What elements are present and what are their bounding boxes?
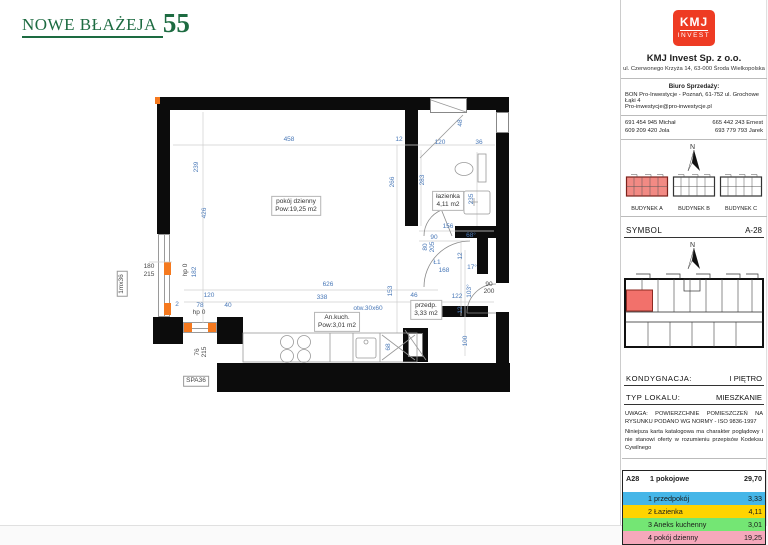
dimension-label: 103° — [467, 284, 474, 297]
sales-office: Biuro Sprzedaży: BON Pro-Inwestycje - Po… — [621, 79, 767, 116]
floor-location-section: N — [621, 238, 767, 367]
dimension-label: SPA36 — [183, 376, 209, 387]
phone-list: 691 454 945 Michał665 442 243 Ernest609 … — [621, 116, 767, 140]
dimension-label: hp 0 — [183, 264, 190, 277]
sales-office-heading: Biuro Sprzedaży: — [625, 83, 763, 90]
room-label: pokój dziennyPow:19,25 m2 — [271, 196, 321, 216]
window-marker — [164, 262, 171, 275]
type-label: TYP LOKALU: — [626, 393, 680, 402]
room-label: An.kuch.Pow:3,01 m2 — [314, 312, 360, 332]
dimension-label: 100 — [463, 336, 470, 347]
wall — [217, 317, 243, 344]
dimension-label: 426 — [202, 208, 209, 219]
duct-shaft-inner — [408, 333, 423, 357]
dimension-label: 12 — [395, 137, 402, 144]
company-address: ul. Czerwonego Krzyża 14, 63-000 Środa W… — [621, 66, 767, 72]
highlighted-apartment — [627, 290, 653, 311]
dimension-label: 156 — [443, 224, 454, 231]
dimension-label: 235 — [469, 194, 476, 205]
dimension-label: 200 — [484, 289, 495, 296]
dimension-label: 338 — [317, 295, 328, 302]
dimension-label: 46 — [410, 293, 417, 300]
dimension-label: 458 — [284, 137, 295, 144]
type-value: MIESZKANIE — [716, 393, 762, 402]
dimension-label: 48 — [458, 119, 465, 126]
dimension-label: 120 — [435, 140, 446, 147]
buildings-row: BUDYNEK ABUDYNEK BBUDYNEK C — [621, 173, 767, 212]
dimension-label: 68° — [466, 233, 476, 240]
north-arrow-icon: N — [682, 142, 706, 172]
wall — [217, 363, 510, 392]
floor-value: I PIĘTRO — [730, 374, 763, 383]
wall — [496, 312, 509, 363]
phone-item: 665 442 243 Ernest — [694, 120, 763, 126]
note-line1: UWAGA: POWIERZCHNIE POMIESZCZEŃ NA RYSUN… — [625, 410, 763, 427]
dimension-label: 215 — [144, 272, 155, 279]
dimension-label: 1mx36 — [117, 271, 128, 297]
dimension-label: 239 — [194, 162, 201, 173]
svg-text:N: N — [690, 144, 695, 151]
table-spacer — [623, 485, 765, 492]
wall — [153, 317, 183, 344]
kmj-logo-subtext: INVEST — [678, 33, 710, 40]
floor-label: KONDYGNACJA: — [626, 374, 692, 383]
dimension-label: 120 — [204, 293, 215, 300]
dimension-label: 12 — [458, 306, 465, 313]
window-marker — [184, 323, 192, 332]
dimension-label: 182 — [192, 267, 199, 278]
dimension-label: 153 — [388, 286, 395, 297]
phone-item: 691 454 945 Michał — [625, 120, 694, 126]
kmj-logo-bar — [680, 30, 708, 31]
wall — [496, 110, 509, 283]
floor-row: KONDYGNACJA: I PIĘTRO — [624, 372, 764, 386]
washer-niche — [430, 98, 467, 113]
dimension-label: 266 — [390, 177, 397, 188]
area-table-row: 4 pokój dzienny19,25 — [623, 531, 765, 544]
area-table: A28 1 pokojowe 29,70 1 przedpokój3,332 Ł… — [622, 470, 766, 545]
building-thumbnail: BUDYNEK B — [671, 173, 717, 212]
north-arrow-icon: N — [682, 240, 706, 270]
dimension-label: 168 — [439, 268, 450, 275]
wall — [477, 238, 488, 274]
phone-item: 693 779 793 Jarek — [694, 128, 763, 134]
area-table-row: 2 Łazienka4,11 — [623, 505, 765, 518]
window-marker — [155, 97, 160, 104]
area-table-rows: 1 przedpokój3,332 Łazienka4,113 Aneks ku… — [623, 492, 765, 544]
room-label: łazienka4,11 m2 — [432, 191, 464, 211]
company-header: KMJ INVEST KMJ Invest Sp. z o.o. ul. Cze… — [621, 0, 767, 79]
dimension-label: 90 — [430, 235, 437, 242]
sales-office-email: Pro-inwestycje@pro-inwestycje.pl — [625, 104, 763, 110]
note-line2: Niniejsza karta katalogowa ma charakter … — [625, 428, 763, 453]
total-area: 29,70 — [744, 474, 762, 483]
floorplan-thumbnail — [622, 270, 766, 356]
area-table-header: A28 1 pokojowe 29,70 — [623, 471, 765, 485]
company-name: KMJ Invest Sp. z o.o. — [621, 53, 767, 64]
info-panel: KMJ INVEST KMJ Invest Sp. z o.o. ul. Cze… — [621, 0, 767, 525]
wall-niche — [496, 112, 509, 133]
building-thumbnail: BUDYNEK A — [624, 173, 670, 212]
dimension-label: 17° — [467, 265, 477, 272]
building-thumbnail: BUDYNEK C — [718, 173, 764, 212]
building-label: BUDYNEK B — [671, 206, 717, 212]
dimension-label: Ł1 — [433, 260, 440, 267]
svg-text:N: N — [690, 242, 695, 249]
phone-item: 609 209 420 Jola — [625, 128, 694, 134]
window-marker — [164, 303, 171, 315]
dimension-label: 626 — [323, 282, 334, 289]
type-row: TYP LOKALU: MIESZKANIE — [624, 391, 764, 405]
buildings-section: N BUDYNEK ABUDYNEK BBUDYNEK C — [621, 140, 767, 217]
attributes-section: KONDYGNACJA: I PIĘTRO TYP LOKALU: MIESZK… — [621, 372, 767, 405]
kmj-logo-text: KMJ — [680, 16, 708, 28]
dimension-label: 36 — [475, 140, 482, 147]
room-label: przedp.3,33 m2 — [410, 300, 442, 320]
building-label: BUDYNEK A — [624, 206, 670, 212]
wall — [405, 110, 418, 226]
dimension-label: hp 0 — [193, 310, 206, 317]
wall — [157, 97, 170, 234]
area-table-row: 1 przedpokój3,33 — [623, 492, 765, 505]
dimension-label: otw.30x60 — [353, 306, 382, 313]
dimension-label: 205 — [430, 242, 437, 253]
kmj-logo: KMJ INVEST — [673, 10, 715, 46]
unit-type: 1 pokojowe — [648, 474, 744, 483]
disclaimer-note: UWAGA: POWIERZCHNIE POMIESZCZEŃ NA RYSUN… — [622, 405, 766, 459]
dimension-label: 180 — [144, 264, 155, 271]
dimension-label: 12 — [458, 252, 465, 259]
symbol-row: SYMBOL A-28 — [624, 224, 764, 238]
symbol-value: A-28 — [745, 226, 762, 235]
area-table-row: 3 Aneks kuchenny3,01 — [623, 518, 765, 531]
dimension-label: 68 — [386, 343, 393, 350]
unit-code: A28 — [626, 474, 648, 483]
wall — [455, 226, 509, 238]
building-label: BUDYNEK C — [718, 206, 764, 212]
dimension-label: 122 — [452, 294, 463, 301]
dimension-label: 2 — [175, 302, 179, 309]
sales-office-line1: BON Pro-Inwestycje - Poznań, 61-752 ul. … — [625, 92, 763, 104]
dimension-label: 283 — [420, 175, 427, 186]
dimension-label: 40 — [224, 303, 231, 310]
symbol-label: SYMBOL — [626, 226, 662, 235]
window-marker — [208, 323, 216, 332]
dimension-label: 215 — [202, 347, 209, 358]
